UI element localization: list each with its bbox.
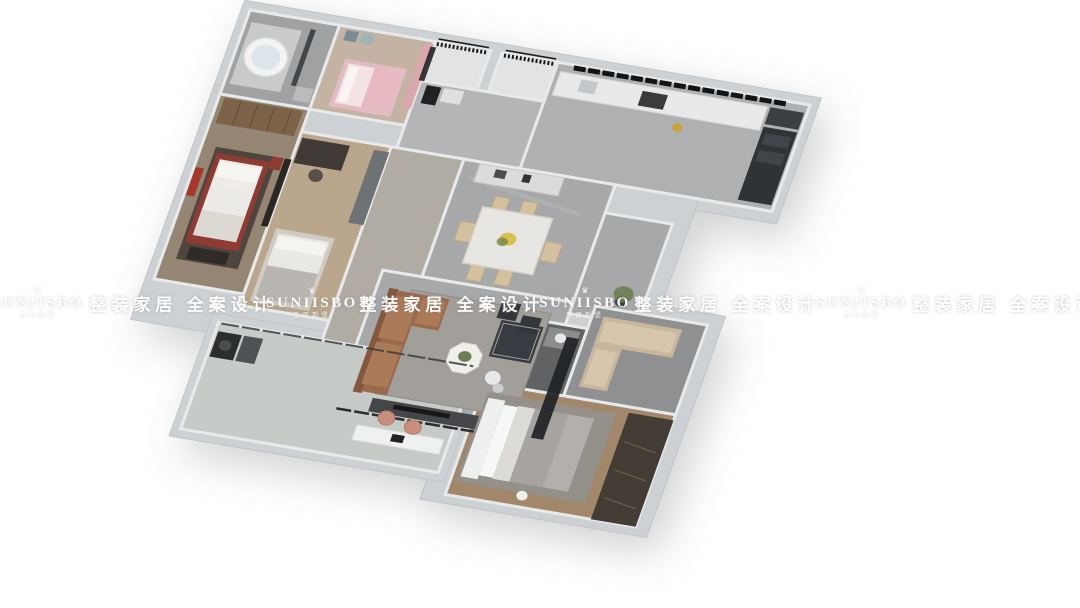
potted-plant xyxy=(614,286,634,302)
bathtub-water xyxy=(251,45,280,70)
render-canvas: ♛ SUNIISBO 圣尼斯堡 整装家居 全案设计 ♛ SUNIISBO 圣尼斯… xyxy=(0,0,1080,608)
rose-chair xyxy=(404,420,421,434)
flower-leaves xyxy=(497,237,508,246)
white-flowers xyxy=(516,491,527,501)
gold-pan xyxy=(672,123,682,132)
washer-drum xyxy=(219,340,231,351)
rose-chair xyxy=(378,411,395,425)
floorplan-render xyxy=(0,0,1080,608)
desk-chair xyxy=(308,169,323,182)
toilet xyxy=(485,371,501,385)
floor-lamp xyxy=(492,383,503,393)
ensuite-sink xyxy=(555,333,566,343)
table-plant xyxy=(458,351,471,362)
